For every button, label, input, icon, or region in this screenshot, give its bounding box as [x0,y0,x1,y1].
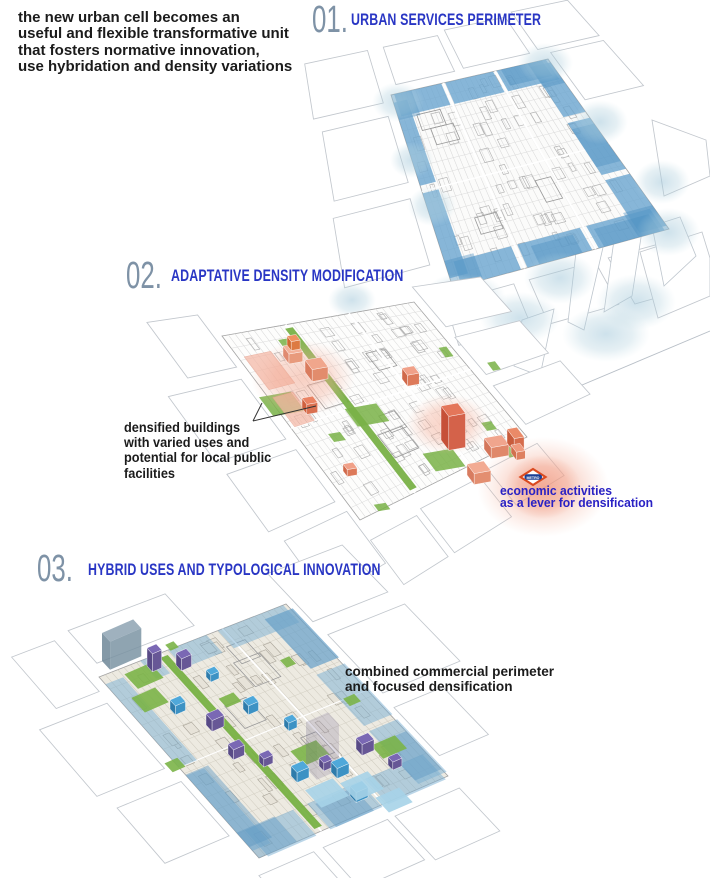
svg-text:METRO: METRO [527,476,540,480]
